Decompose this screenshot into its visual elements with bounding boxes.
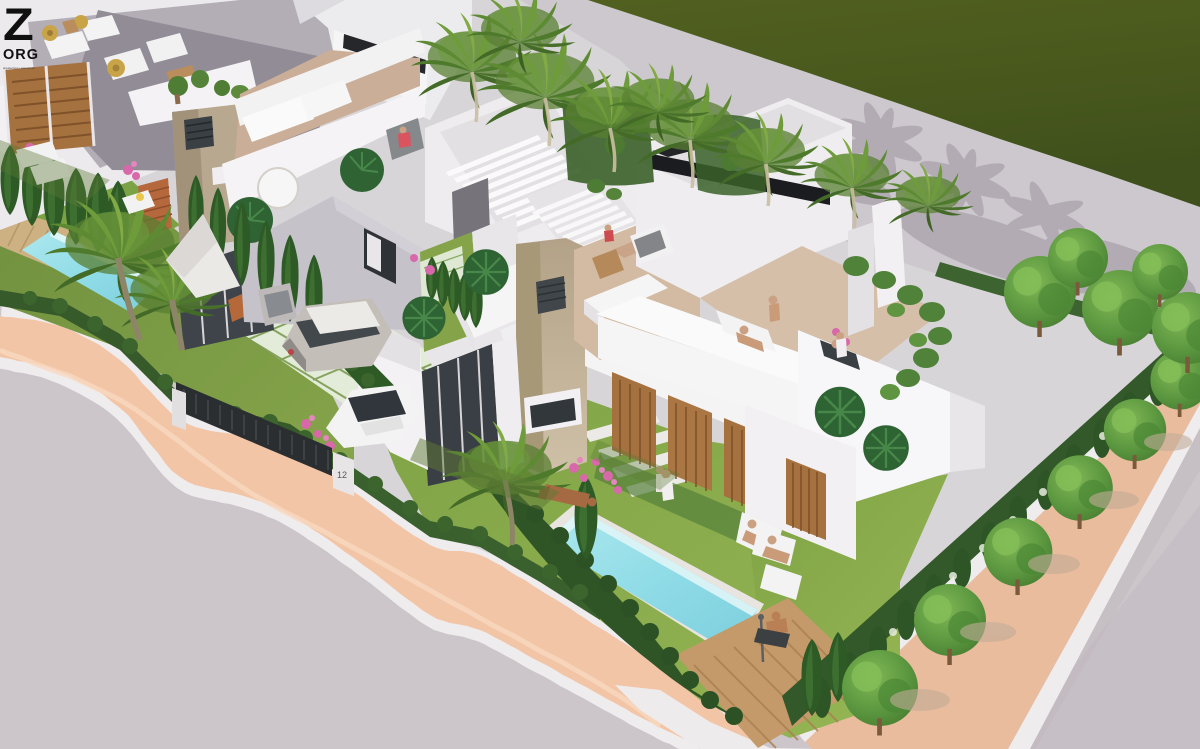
svg-text:12: 12	[337, 470, 347, 480]
